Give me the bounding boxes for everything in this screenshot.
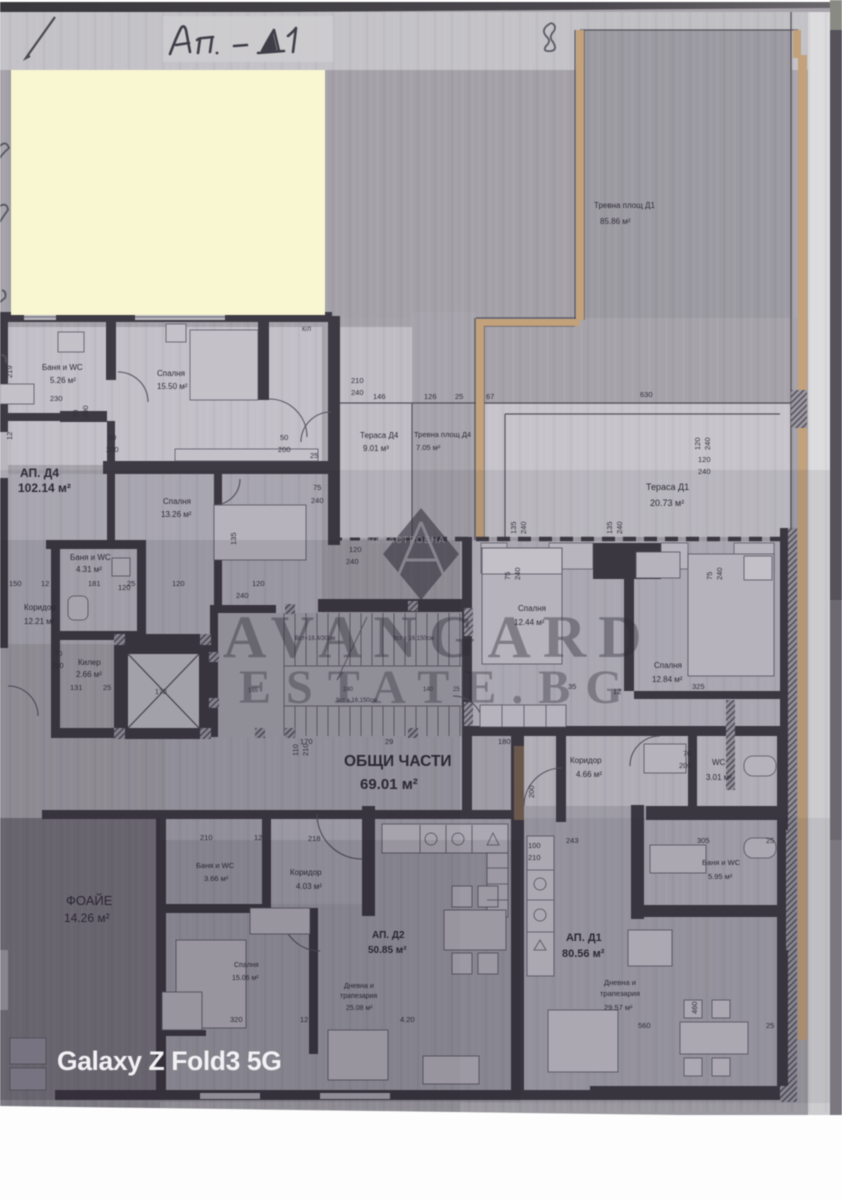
svg-text:Galaxy Z Fold3 5G: Galaxy Z Fold3 5G xyxy=(57,1046,281,1076)
svg-text:126: 126 xyxy=(424,392,437,401)
svg-text:Тревна площ Д4: Тревна площ Д4 xyxy=(414,430,471,439)
svg-text:200: 200 xyxy=(106,445,119,454)
svg-text:Спалня: Спалня xyxy=(157,369,185,378)
svg-text:7.05 м²: 7.05 м² xyxy=(416,443,441,452)
svg-text:85.86 м²: 85.86 м² xyxy=(600,217,631,226)
svg-text:15.50 м²: 15.50 м² xyxy=(157,382,188,391)
svg-text:200: 200 xyxy=(81,405,90,418)
svg-text:25: 25 xyxy=(455,392,463,401)
svg-text:Тревна площ Д1: Тревна площ Д1 xyxy=(594,201,655,210)
svg-text:70: 70 xyxy=(71,410,80,418)
svg-text:12: 12 xyxy=(5,432,14,440)
svg-text:5.26 м²: 5.26 м² xyxy=(50,376,76,385)
svg-text:219: 219 xyxy=(5,365,14,378)
svg-text:630: 630 xyxy=(640,390,653,399)
svg-text:НЕЗАСТРОЕНА: НЕЗАСТРОЕНА xyxy=(368,535,446,545)
svg-text:240: 240 xyxy=(703,437,712,450)
svg-text:Тераса Д4: Тераса Д4 xyxy=(360,431,399,440)
svg-text:ESTATE.BG: ESTATE.BG xyxy=(239,661,638,714)
svg-text:230: 230 xyxy=(50,394,63,403)
svg-text:25: 25 xyxy=(310,451,318,460)
svg-text:200: 200 xyxy=(278,445,291,454)
svg-text:80: 80 xyxy=(108,433,116,442)
svg-text:240: 240 xyxy=(351,388,364,397)
svg-text:К/Л: К/Л xyxy=(302,327,311,333)
svg-text:210: 210 xyxy=(351,376,364,385)
svg-text:120: 120 xyxy=(693,437,702,450)
svg-text:120: 120 xyxy=(698,455,711,464)
svg-text:9.01 м³: 9.01 м³ xyxy=(363,444,389,453)
svg-text:50: 50 xyxy=(280,433,288,442)
svg-text:67: 67 xyxy=(486,392,494,401)
svg-text:146: 146 xyxy=(373,392,386,401)
svg-text:Баня и WC: Баня и WC xyxy=(42,363,83,372)
